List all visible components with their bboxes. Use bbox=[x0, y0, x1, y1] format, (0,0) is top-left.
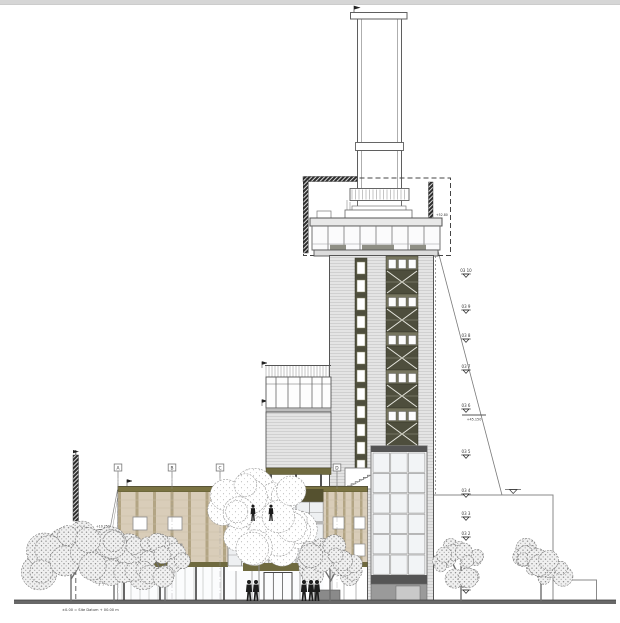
elevation-sheet: +45.150 +10.250 +52.80 bbox=[0, 0, 620, 623]
chimney-top-flag bbox=[354, 6, 360, 13]
level-label: 03 3 bbox=[462, 511, 471, 516]
parapet-flag bbox=[127, 480, 132, 487]
grid-bubble: A bbox=[114, 464, 122, 486]
level-label: 03 8 bbox=[462, 333, 471, 338]
pavilion-cornice bbox=[310, 218, 442, 226]
level-marker: 03 9 bbox=[461, 304, 471, 313]
level-label: 03 6 bbox=[462, 403, 471, 408]
elevation-drawing: +45.150 +10.250 +52.80 bbox=[0, 0, 620, 623]
level-marker: 03 6 bbox=[461, 403, 471, 412]
tower-pavilion bbox=[310, 206, 442, 256]
level-marker: 03 8 bbox=[461, 333, 471, 342]
grid-bubble-label: A bbox=[116, 465, 119, 471]
level-label: 03 4 bbox=[462, 488, 471, 493]
diagonal-leader: +45.150 bbox=[437, 247, 502, 495]
level-marker: 03 5 bbox=[461, 449, 471, 458]
level-label: 03 7 bbox=[462, 364, 471, 369]
level-label: 03 5 bbox=[462, 449, 471, 454]
diagonal-level-note: +45.150 bbox=[467, 418, 482, 422]
level-label: 03 9 bbox=[462, 304, 471, 309]
background-datum-marker bbox=[505, 490, 521, 494]
hatch-bar-left bbox=[303, 178, 308, 253]
grid-bubble-label: B bbox=[170, 465, 173, 471]
hatch-bar-top bbox=[303, 177, 357, 182]
grid-bubble-label: C bbox=[218, 465, 221, 471]
window-top-edge bbox=[0, 0, 620, 5]
level-marker: 03 10 bbox=[460, 268, 472, 277]
pavilion-sill-panels bbox=[330, 245, 426, 250]
level-label: 03 2 bbox=[462, 531, 471, 536]
datum-note: ±0.00 = Site Datum + 00.00 m bbox=[62, 608, 119, 612]
annex-wing bbox=[262, 362, 331, 488]
chimney-stack bbox=[347, 6, 409, 217]
level-label: 03 10 bbox=[460, 268, 472, 273]
hatch-bar-right bbox=[429, 182, 434, 220]
pavilion-note: +52.80 bbox=[436, 213, 448, 217]
grid-bubble: B bbox=[168, 464, 176, 486]
